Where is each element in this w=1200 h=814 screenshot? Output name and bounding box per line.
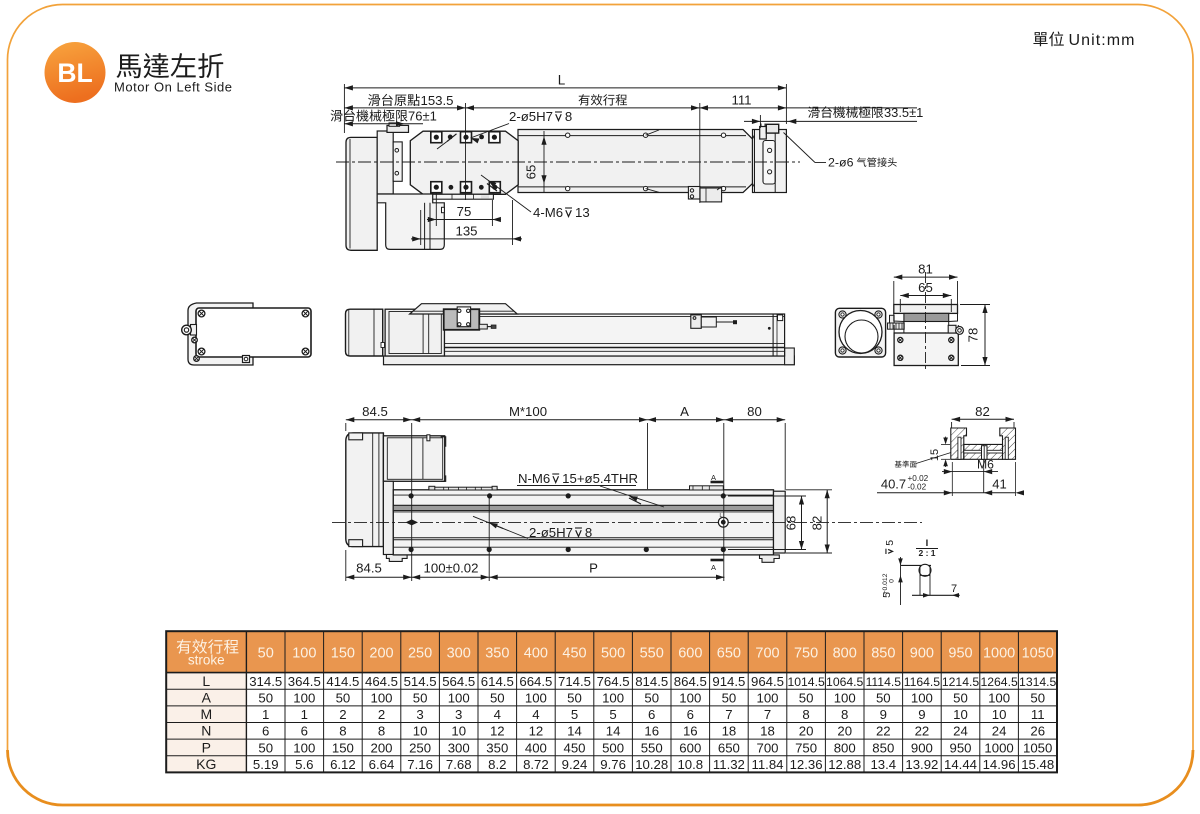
svg-text:10.28: 10.28 — [635, 757, 668, 772]
svg-text:50: 50 — [722, 690, 737, 705]
svg-text:464.5: 464.5 — [365, 674, 398, 689]
svg-text:950: 950 — [948, 645, 972, 661]
svg-text:10: 10 — [451, 724, 466, 739]
svg-text:KG: KG — [196, 756, 216, 772]
svg-text:16: 16 — [644, 724, 659, 739]
svg-text:950: 950 — [949, 740, 971, 755]
svg-text:M*100: M*100 — [509, 404, 547, 419]
svg-text:3: 3 — [416, 707, 423, 722]
svg-text:200: 200 — [370, 740, 392, 755]
svg-text:40.7: 40.7 — [881, 477, 906, 492]
svg-text:50: 50 — [1030, 690, 1045, 705]
svg-text:L: L — [720, 513, 723, 519]
svg-text:514.5: 514.5 — [404, 674, 437, 689]
svg-text:16: 16 — [683, 724, 698, 739]
svg-text:4-M6: 4-M6 — [533, 205, 563, 220]
svg-text:5: 5 — [609, 707, 616, 722]
svg-text:15+ø5.4THR: 15+ø5.4THR — [562, 471, 638, 486]
svg-text:6: 6 — [262, 724, 269, 739]
svg-text:111: 111 — [731, 93, 751, 108]
svg-text:150: 150 — [332, 740, 354, 755]
svg-text:100: 100 — [525, 690, 547, 705]
svg-text:2-ø5H7: 2-ø5H7 — [509, 109, 553, 124]
svg-text:14: 14 — [567, 724, 582, 739]
svg-text:N-M6: N-M6 — [518, 471, 550, 486]
svg-text:100: 100 — [911, 690, 933, 705]
svg-text:750: 750 — [794, 645, 818, 661]
svg-text:81: 81 — [918, 262, 933, 277]
svg-text:450: 450 — [562, 645, 586, 661]
svg-text:8: 8 — [565, 109, 572, 124]
svg-text:L: L — [202, 673, 210, 689]
svg-text:400: 400 — [524, 645, 548, 661]
svg-text:1264.5: 1264.5 — [980, 675, 1017, 689]
svg-text:13: 13 — [575, 205, 590, 220]
svg-text:2: 2 — [378, 707, 385, 722]
svg-text:9.76: 9.76 — [600, 757, 626, 772]
svg-text:A: A — [202, 689, 212, 705]
svg-text:900: 900 — [911, 740, 933, 755]
svg-text:75: 75 — [457, 204, 472, 219]
svg-text:500: 500 — [602, 740, 624, 755]
svg-text:11.32: 11.32 — [713, 757, 745, 772]
svg-text:10: 10 — [413, 724, 428, 739]
svg-text:14.96: 14.96 — [983, 757, 1016, 772]
svg-text:364.5: 364.5 — [288, 674, 321, 689]
svg-text:M: M — [200, 706, 212, 722]
svg-text:414.5: 414.5 — [326, 674, 359, 689]
svg-text:964.5: 964.5 — [751, 674, 784, 689]
svg-text:22: 22 — [876, 724, 891, 739]
svg-text:135: 135 — [455, 224, 477, 239]
svg-text:15: 15 — [929, 449, 941, 461]
svg-text:4: 4 — [532, 707, 539, 722]
svg-text:814.5: 814.5 — [635, 674, 668, 689]
svg-text:6: 6 — [301, 724, 308, 739]
svg-text:13.92: 13.92 — [905, 757, 938, 772]
svg-text:18: 18 — [760, 724, 775, 739]
svg-text:664.5: 664.5 — [519, 674, 552, 689]
svg-text:7: 7 — [725, 707, 732, 722]
svg-text:6.64: 6.64 — [369, 757, 395, 772]
svg-text:7.68: 7.68 — [446, 757, 472, 772]
svg-text:100: 100 — [756, 690, 778, 705]
svg-text:400: 400 — [525, 740, 547, 755]
svg-text:9: 9 — [880, 707, 887, 722]
svg-text:50: 50 — [799, 690, 814, 705]
svg-text:-0.02: -0.02 — [908, 483, 927, 492]
svg-text:4: 4 — [494, 707, 501, 722]
svg-text:14: 14 — [606, 724, 621, 739]
svg-text:7.16: 7.16 — [407, 757, 433, 772]
svg-text:50: 50 — [258, 645, 274, 661]
svg-text:6.12: 6.12 — [330, 757, 356, 772]
svg-text:0: 0 — [889, 579, 896, 583]
svg-text:5.19: 5.19 — [253, 757, 279, 772]
svg-text:BL: BL — [57, 58, 92, 88]
svg-text:1: 1 — [301, 707, 308, 722]
svg-text:50: 50 — [644, 690, 659, 705]
svg-text:50: 50 — [490, 690, 505, 705]
svg-text:1050: 1050 — [1023, 740, 1052, 755]
svg-text:250: 250 — [409, 740, 431, 755]
svg-text:65: 65 — [918, 280, 933, 295]
svg-text:P: P — [202, 739, 211, 755]
svg-text:100: 100 — [834, 690, 856, 705]
svg-text:153.5: 153.5 — [421, 93, 454, 108]
svg-text:8: 8 — [802, 707, 809, 722]
svg-text:100: 100 — [602, 690, 624, 705]
svg-text:564.5: 564.5 — [442, 674, 475, 689]
svg-text:Motor On Left Side: Motor On Left Side — [114, 80, 232, 95]
svg-text:15.48: 15.48 — [1021, 757, 1054, 772]
svg-text:2-ø6: 2-ø6 — [828, 156, 854, 170]
svg-text:500: 500 — [601, 645, 625, 661]
svg-text:200: 200 — [369, 645, 393, 661]
svg-text:22: 22 — [915, 724, 930, 739]
svg-text:700: 700 — [756, 740, 778, 755]
svg-text:N: N — [201, 723, 211, 739]
svg-text:13.4: 13.4 — [870, 757, 896, 772]
svg-text:100: 100 — [370, 690, 392, 705]
svg-text:50: 50 — [876, 690, 891, 705]
svg-text:50: 50 — [258, 740, 273, 755]
svg-text:50: 50 — [258, 690, 273, 705]
svg-text:12.36: 12.36 — [790, 757, 823, 772]
svg-text:1: 1 — [262, 707, 269, 722]
svg-text:764.5: 764.5 — [597, 674, 630, 689]
svg-text:2 : 1: 2 : 1 — [918, 548, 935, 558]
svg-text:A: A — [711, 563, 716, 572]
svg-text:12.88: 12.88 — [828, 757, 861, 772]
svg-text:550: 550 — [641, 740, 663, 755]
svg-text:68: 68 — [784, 516, 799, 531]
svg-text:10: 10 — [953, 707, 968, 722]
svg-text:84.5: 84.5 — [356, 561, 382, 576]
svg-text:350: 350 — [485, 645, 509, 661]
svg-text:10: 10 — [992, 707, 1007, 722]
svg-text:100: 100 — [679, 690, 701, 705]
svg-text:914.5: 914.5 — [712, 674, 745, 689]
svg-text:1314.5: 1314.5 — [1019, 675, 1056, 689]
svg-text:1064.5: 1064.5 — [826, 675, 863, 689]
svg-text:2: 2 — [339, 707, 346, 722]
svg-text:1114.5: 1114.5 — [866, 675, 902, 689]
svg-text:1050: 1050 — [1022, 645, 1054, 661]
svg-text:1164.5: 1164.5 — [904, 675, 941, 689]
svg-text:50: 50 — [953, 690, 968, 705]
svg-text:11.84: 11.84 — [751, 757, 783, 772]
svg-text:864.5: 864.5 — [674, 674, 707, 689]
svg-text:1014.5: 1014.5 — [787, 675, 824, 689]
svg-text:650: 650 — [717, 645, 741, 661]
svg-text:33.5±1: 33.5±1 — [884, 105, 923, 120]
svg-text:5: 5 — [884, 540, 896, 546]
svg-text:50: 50 — [567, 690, 582, 705]
svg-text:8.2: 8.2 — [488, 757, 506, 772]
svg-text:20: 20 — [837, 724, 852, 739]
svg-text:78: 78 — [966, 328, 981, 343]
svg-text:850: 850 — [872, 740, 894, 755]
svg-text:8: 8 — [585, 525, 592, 540]
svg-text:12: 12 — [529, 724, 544, 739]
svg-text:650: 650 — [718, 740, 740, 755]
svg-text:Unit:mm: Unit:mm — [1069, 32, 1135, 49]
svg-text:750: 750 — [795, 740, 817, 755]
svg-text:8: 8 — [841, 707, 848, 722]
svg-text:84.5: 84.5 — [362, 404, 388, 419]
svg-text:100: 100 — [293, 740, 315, 755]
svg-text:600: 600 — [678, 645, 702, 661]
svg-text:A: A — [680, 404, 689, 419]
svg-text:450: 450 — [563, 740, 585, 755]
svg-text:11: 11 — [1031, 707, 1045, 722]
svg-text:5: 5 — [571, 707, 578, 722]
svg-text:9.24: 9.24 — [562, 757, 588, 772]
svg-text:100: 100 — [293, 690, 315, 705]
svg-text:10.8: 10.8 — [677, 757, 703, 772]
svg-text:550: 550 — [640, 645, 664, 661]
svg-text:82: 82 — [810, 516, 825, 531]
svg-text:18: 18 — [722, 724, 737, 739]
svg-text:100: 100 — [448, 690, 470, 705]
svg-text:41: 41 — [992, 477, 1006, 492]
svg-text:314.5: 314.5 — [249, 674, 282, 689]
svg-text:100±0.02: 100±0.02 — [424, 561, 479, 576]
svg-text:3: 3 — [455, 707, 462, 722]
svg-text:6: 6 — [687, 707, 694, 722]
svg-text:50: 50 — [413, 690, 428, 705]
svg-text:850: 850 — [871, 645, 895, 661]
svg-text:714.5: 714.5 — [558, 674, 591, 689]
svg-text:82: 82 — [975, 404, 990, 419]
svg-text:8: 8 — [378, 724, 385, 739]
svg-text:800: 800 — [834, 740, 856, 755]
svg-text:1214.5: 1214.5 — [942, 675, 979, 689]
svg-text:14.44: 14.44 — [944, 757, 977, 772]
svg-text:L: L — [558, 73, 566, 88]
svg-text:7: 7 — [951, 583, 957, 595]
svg-text:250: 250 — [408, 645, 432, 661]
svg-text:350: 350 — [486, 740, 508, 755]
svg-text:800: 800 — [833, 645, 857, 661]
svg-text:24: 24 — [953, 724, 968, 739]
svg-text:8.72: 8.72 — [523, 757, 549, 772]
svg-text:26: 26 — [1030, 724, 1045, 739]
svg-text:300: 300 — [448, 740, 470, 755]
svg-text:A: A — [711, 473, 716, 482]
svg-text:80: 80 — [747, 404, 762, 419]
svg-text:24: 24 — [992, 724, 1007, 739]
svg-text:100: 100 — [988, 690, 1010, 705]
svg-text:50: 50 — [336, 690, 351, 705]
svg-text:150: 150 — [331, 645, 355, 661]
svg-text:5.6: 5.6 — [295, 757, 313, 772]
svg-text:20: 20 — [799, 724, 814, 739]
svg-text:1000: 1000 — [984, 740, 1013, 755]
svg-text:100: 100 — [292, 645, 316, 661]
svg-text:1000: 1000 — [983, 645, 1015, 661]
svg-text:65: 65 — [524, 165, 539, 180]
svg-text:+0.012: +0.012 — [882, 573, 889, 594]
svg-text:6: 6 — [648, 707, 655, 722]
svg-text:P: P — [589, 561, 598, 576]
svg-text:600: 600 — [679, 740, 701, 755]
svg-text:76±1: 76±1 — [408, 109, 437, 124]
svg-text:2-ø5H7: 2-ø5H7 — [529, 525, 573, 540]
svg-text:900: 900 — [910, 645, 934, 661]
svg-text:300: 300 — [447, 645, 471, 661]
svg-text:12: 12 — [490, 724, 505, 739]
svg-text:stroke: stroke — [188, 652, 225, 667]
svg-text:614.5: 614.5 — [481, 674, 514, 689]
svg-text:7: 7 — [764, 707, 771, 722]
svg-text:700: 700 — [755, 645, 779, 661]
svg-text:9: 9 — [918, 707, 925, 722]
svg-text:8: 8 — [339, 724, 346, 739]
